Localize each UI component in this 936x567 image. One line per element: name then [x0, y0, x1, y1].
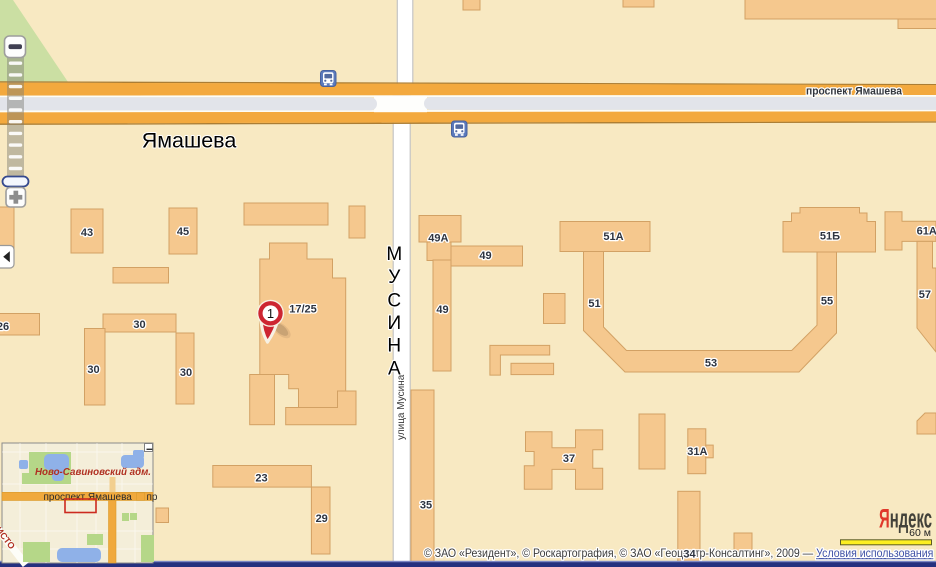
- svg-text:29: 29: [316, 513, 328, 525]
- svg-text:34: 34: [683, 549, 696, 561]
- svg-text:49: 49: [479, 250, 491, 262]
- svg-text:проспект Ямашева: проспект Ямашева: [806, 86, 903, 98]
- svg-text:У: У: [388, 267, 401, 288]
- svg-text:51: 51: [588, 298, 600, 310]
- svg-text:С: С: [387, 291, 401, 312]
- svg-text:43: 43: [81, 227, 93, 239]
- svg-text:23: 23: [255, 473, 267, 485]
- svg-text:45: 45: [177, 226, 189, 238]
- svg-text:57: 57: [919, 289, 931, 301]
- svg-text:37: 37: [563, 453, 575, 465]
- svg-text:30: 30: [87, 364, 99, 376]
- svg-text:26: 26: [0, 321, 9, 333]
- svg-text:49А: 49А: [428, 233, 448, 245]
- svg-text:М: М: [386, 244, 402, 265]
- svg-text:30: 30: [180, 367, 192, 379]
- svg-text:31А: 31А: [687, 446, 707, 458]
- svg-text:И: И: [387, 313, 401, 334]
- svg-text:1: 1: [267, 306, 274, 321]
- svg-text:улица Мусина: улица Мусина: [396, 374, 407, 440]
- svg-text:пр: пр: [147, 492, 158, 503]
- svg-text:55: 55: [821, 296, 833, 308]
- svg-text:51А: 51А: [603, 231, 623, 243]
- svg-text:© ЗАО «Резидент», © Роскартогр: © ЗАО «Резидент», © Роскартография, © ЗА…: [424, 548, 933, 560]
- svg-text:проспект Ямашева: проспект Ямашева: [44, 492, 133, 503]
- svg-text:61А: 61А: [917, 226, 936, 238]
- svg-text:30: 30: [133, 319, 145, 331]
- svg-text:53: 53: [705, 358, 717, 370]
- svg-text:51Б: 51Б: [820, 231, 840, 243]
- svg-text:49: 49: [436, 304, 448, 316]
- svg-text:Н: Н: [387, 336, 401, 357]
- svg-text:Ново-Савиновский адм.: Ново-Савиновский адм.: [35, 466, 151, 478]
- svg-text:17/25: 17/25: [289, 304, 317, 316]
- svg-text:Яндекс: Яндекс: [879, 504, 932, 534]
- svg-text:35: 35: [420, 500, 432, 512]
- svg-text:Ямашева: Ямашева: [142, 129, 237, 153]
